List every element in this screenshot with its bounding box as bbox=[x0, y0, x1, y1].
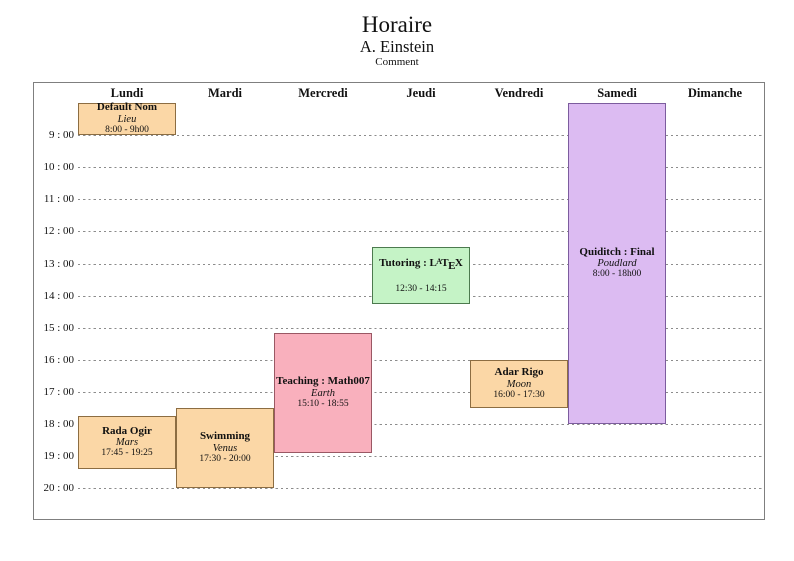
event-quiditch-final: Quiditch : FinalPoudlard8:00 - 18h00 bbox=[568, 103, 666, 424]
schedule-chart: LundiMardiMercrediJeudiVendrediSamediDim… bbox=[33, 82, 765, 520]
page-subtitle: A. Einstein bbox=[0, 38, 794, 55]
hour-label: 11 : 00 bbox=[34, 193, 74, 205]
hour-label: 19 : 00 bbox=[34, 450, 74, 462]
event-tutoring-latex: Tutoring : LATEX12:30 - 14:15 bbox=[372, 247, 470, 303]
hour-label: 12 : 00 bbox=[34, 225, 74, 237]
day-header-lundi: Lundi bbox=[78, 85, 176, 101]
hour-label: 15 : 00 bbox=[34, 322, 74, 334]
event-time: 17:45 - 19:25 bbox=[101, 448, 152, 459]
hour-label: 18 : 00 bbox=[34, 418, 74, 430]
title-block: Horaire A. Einstein Comment bbox=[0, 12, 794, 69]
day-header-jeudi: Jeudi bbox=[372, 85, 470, 101]
event-title: Rada Ogir bbox=[102, 426, 152, 438]
page: Horaire A. Einstein Comment LundiMardiMe… bbox=[0, 0, 794, 561]
hour-label: 14 : 00 bbox=[34, 290, 74, 302]
day-header-mercredi: Mercredi bbox=[274, 85, 372, 101]
hour-label: 16 : 00 bbox=[34, 354, 74, 366]
hour-label: 20 : 00 bbox=[34, 482, 74, 494]
event-location: Poudlard bbox=[597, 258, 636, 269]
event-time: 15:10 - 18:55 bbox=[297, 399, 348, 410]
event-location: Mars bbox=[116, 437, 138, 448]
event-title: Teaching : Math007 bbox=[276, 376, 370, 388]
day-header-mardi: Mardi bbox=[176, 85, 274, 101]
page-comment: Comment bbox=[0, 55, 794, 69]
page-title: Horaire bbox=[0, 12, 794, 38]
event-adar-rigo: Adar RigoMoon16:00 - 17:30 bbox=[470, 360, 568, 408]
event-title: Adar Rigo bbox=[495, 367, 544, 379]
event-location: Moon bbox=[507, 379, 532, 390]
event-default-nom: Default NomLieu8:00 - 9h00 bbox=[78, 103, 176, 135]
hour-gridline bbox=[78, 488, 763, 489]
event-title: Quiditch : Final bbox=[579, 247, 654, 259]
latex-logo-letter: X bbox=[455, 258, 463, 270]
hour-label: 13 : 00 bbox=[34, 258, 74, 270]
event-title: Swimming bbox=[200, 431, 250, 443]
hour-label: 9 : 00 bbox=[34, 129, 74, 141]
event-swimming: SwimmingVenus17:30 - 20:00 bbox=[176, 408, 274, 488]
hour-label: 10 : 00 bbox=[34, 161, 74, 173]
day-header-vendredi: Vendredi bbox=[470, 85, 568, 101]
hour-label: 17 : 00 bbox=[34, 386, 74, 398]
event-time: 12:30 - 14:15 bbox=[395, 284, 446, 295]
event-title: Default Nom bbox=[97, 102, 157, 114]
event-time: 8:00 - 9h00 bbox=[105, 125, 149, 136]
event-title: Tutoring : LATEX bbox=[379, 256, 463, 272]
day-header-samedi: Samedi bbox=[568, 85, 666, 101]
event-location: Earth bbox=[311, 388, 335, 399]
event-teaching-math007: Teaching : Math007Earth15:10 - 18:55 bbox=[274, 333, 372, 453]
event-time: 17:30 - 20:00 bbox=[199, 454, 250, 465]
event-rada-ogir: Rada OgirMars17:45 - 19:25 bbox=[78, 416, 176, 470]
event-time: 8:00 - 18h00 bbox=[593, 269, 642, 280]
event-time: 16:00 - 17:30 bbox=[493, 390, 544, 401]
day-header-dimanche: Dimanche bbox=[666, 85, 764, 101]
event-location: Lieu bbox=[118, 114, 137, 125]
event-location: Venus bbox=[213, 443, 238, 454]
